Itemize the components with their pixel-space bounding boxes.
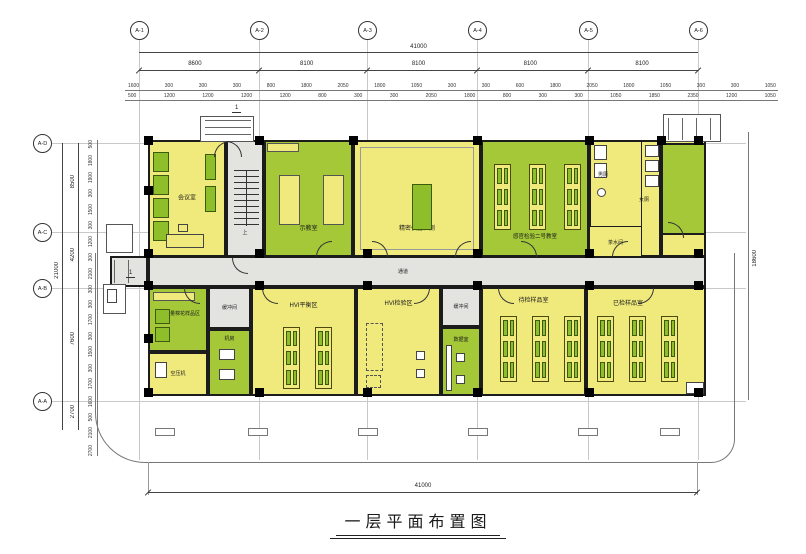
dim-value: 1700 bbox=[88, 314, 94, 325]
equipment-table bbox=[412, 184, 432, 230]
table bbox=[323, 175, 344, 225]
room-buffer-east: 缓冲间 bbox=[441, 287, 481, 327]
section-marker: 1 bbox=[126, 270, 135, 278]
plaza-step bbox=[660, 428, 680, 436]
dim-value: 300 bbox=[88, 300, 94, 308]
axis-label: A-4 bbox=[473, 28, 482, 34]
column bbox=[144, 186, 153, 195]
room-hvi-balance: HVI平衡区 bbox=[251, 287, 356, 396]
dim-value: 300 bbox=[88, 221, 94, 229]
room-classroom: 感官检验二号教室 bbox=[481, 140, 589, 257]
desk bbox=[456, 353, 465, 362]
dim-value: 1200 bbox=[726, 93, 737, 99]
axis-bubble-a3: A-3 bbox=[358, 21, 377, 40]
axis-label: A-1 bbox=[135, 28, 144, 34]
axis-bubble-a4: A-4 bbox=[468, 21, 487, 40]
column bbox=[473, 249, 482, 258]
dim-value: 1500 bbox=[88, 204, 94, 215]
dim-value: 8500 bbox=[70, 175, 76, 188]
dim-line bbox=[78, 143, 79, 430]
dim-value: 300 bbox=[233, 83, 241, 89]
axis-bubble-aa: A-A bbox=[33, 392, 52, 411]
drawing-title-block: 一层平面布置图 bbox=[283, 508, 553, 536]
cabinet bbox=[155, 327, 170, 342]
dim-value: 500 bbox=[88, 140, 94, 148]
dim-value: 300 bbox=[574, 93, 582, 99]
north-entrance-porch bbox=[200, 116, 254, 142]
room-label: 感官检验二号教室 bbox=[483, 234, 587, 241]
dim-value: 1200 bbox=[164, 93, 175, 99]
dim-bottom-total: 41000 bbox=[148, 483, 698, 489]
west-stoop bbox=[106, 224, 133, 253]
dim-value: 2050 bbox=[337, 83, 348, 89]
dim-value: 2700 bbox=[70, 405, 76, 418]
hvi-equipment-outline bbox=[366, 323, 383, 371]
dim-line bbox=[748, 132, 749, 400]
dim-value: 7600 bbox=[70, 332, 76, 345]
dim-value: 1050 bbox=[660, 83, 671, 89]
dim-value: 300 bbox=[354, 93, 362, 99]
room-label: 数据室 bbox=[443, 337, 479, 343]
room-compressor: 空压机 bbox=[148, 352, 208, 396]
sink bbox=[597, 188, 606, 197]
table bbox=[178, 224, 188, 232]
dim-right-total: 18600 bbox=[752, 250, 758, 267]
equipment bbox=[219, 369, 235, 380]
desk-block bbox=[500, 316, 517, 382]
room-label: HVI检验区 bbox=[358, 301, 439, 309]
column bbox=[585, 249, 594, 258]
fire-hydrant-box bbox=[267, 143, 299, 152]
dim-top-bays: 8600 8100 8100 8100 8100 bbox=[139, 61, 698, 67]
column bbox=[363, 249, 372, 258]
room-label: 男厕 bbox=[583, 172, 623, 178]
column bbox=[144, 281, 153, 290]
table bbox=[279, 175, 300, 225]
desk bbox=[456, 375, 465, 384]
axis-bubble-a6: A-6 bbox=[689, 21, 708, 40]
dim-value: 1800 bbox=[301, 83, 312, 89]
column bbox=[255, 249, 264, 258]
room-label: 缓冲间 bbox=[210, 305, 249, 311]
dim-value: 1050 bbox=[411, 83, 422, 89]
cabinet bbox=[153, 198, 169, 218]
dim-value: 2100 bbox=[88, 427, 94, 438]
axis-label: A-B bbox=[38, 286, 47, 292]
dim-value: 1600 bbox=[88, 396, 94, 407]
room-label: 示教室 bbox=[266, 226, 351, 234]
dim-value: 1050 bbox=[765, 83, 776, 89]
dim-value: 1800 bbox=[550, 83, 561, 89]
dim-value: 300 bbox=[731, 83, 739, 89]
column bbox=[694, 249, 703, 258]
dim-value: 4200 bbox=[70, 248, 76, 261]
corridor-label: 通道 bbox=[388, 269, 418, 275]
dim-line bbox=[125, 100, 778, 101]
toilet-stall bbox=[645, 160, 659, 172]
plaza-step bbox=[468, 428, 488, 436]
desk-block bbox=[532, 316, 549, 382]
dim-value: 300 bbox=[199, 83, 207, 89]
desk-block bbox=[629, 316, 646, 382]
partition-wall bbox=[641, 142, 642, 227]
dim-value: 500 bbox=[128, 93, 136, 99]
axis-label: A-2 bbox=[255, 28, 264, 34]
column bbox=[473, 388, 482, 397]
column bbox=[144, 136, 153, 145]
room-label: 已检样品室 bbox=[570, 301, 686, 309]
dim-value: 1200 bbox=[241, 93, 252, 99]
desk-block bbox=[597, 316, 614, 382]
dim-value: 300 bbox=[88, 253, 94, 261]
dim-top-sub-row2: 5001200120012001200800300300205018008003… bbox=[128, 93, 776, 99]
dim-value: 1800 bbox=[88, 155, 94, 166]
desk-block bbox=[529, 164, 546, 230]
dim-left-total: 21000 bbox=[54, 262, 60, 279]
floor-plan-canvas: A-1 A-2 A-3 A-4 A-5 A-6 41000 8600 8100 … bbox=[0, 0, 806, 554]
equipment bbox=[416, 351, 425, 360]
dim-line bbox=[125, 90, 778, 91]
desk-block bbox=[494, 164, 511, 230]
dim-value: 1800 bbox=[374, 83, 385, 89]
desk-block bbox=[661, 316, 678, 382]
plaza-step bbox=[578, 428, 598, 436]
axis-bubble-ac: A-C bbox=[33, 223, 52, 242]
column bbox=[363, 281, 372, 290]
room-precision: 精密仪器检测 bbox=[353, 140, 481, 257]
cabinet bbox=[205, 154, 216, 180]
room-label: 待检样品室 bbox=[483, 298, 584, 306]
dim-value: 8100 bbox=[474, 61, 586, 67]
dim-value: 1050 bbox=[765, 93, 776, 99]
dim-value: 300 bbox=[88, 189, 94, 197]
desk-block bbox=[283, 327, 300, 389]
cabinet bbox=[153, 175, 169, 195]
west-stoop bbox=[103, 284, 126, 314]
axis-label: A-D bbox=[38, 141, 47, 147]
room-meeting: 会议室 bbox=[148, 140, 226, 257]
dim-value: 300 bbox=[390, 93, 398, 99]
room-buffer-west: 缓冲间 bbox=[208, 287, 251, 329]
toilet-stall bbox=[594, 145, 607, 160]
stairwell: 上 bbox=[226, 140, 264, 257]
column bbox=[255, 281, 264, 290]
counter bbox=[446, 345, 452, 391]
axis-label: A-3 bbox=[363, 28, 372, 34]
dim-left-sub: 5001800190030015003001200300210030030017… bbox=[86, 140, 96, 456]
dim-top-sub-row1: 1600300300300800180020501800105030030060… bbox=[128, 83, 776, 89]
room-label: 女厕 bbox=[629, 197, 659, 203]
column bbox=[585, 388, 594, 397]
axis-label: A-C bbox=[38, 230, 47, 236]
dim-value: 300 bbox=[165, 83, 173, 89]
axis-bubble-ad: A-D bbox=[33, 134, 52, 153]
dim-value: 8100 bbox=[363, 61, 475, 67]
desk-block bbox=[315, 327, 332, 389]
dim-value: 800 bbox=[503, 93, 511, 99]
dim-value: 800 bbox=[318, 93, 326, 99]
room-label: 茶水间 bbox=[590, 239, 641, 245]
dim-value: 300 bbox=[88, 285, 94, 293]
stair-up-label: 上 bbox=[228, 230, 262, 236]
column bbox=[144, 249, 153, 258]
dim-line bbox=[139, 52, 698, 53]
cabinet bbox=[153, 152, 169, 172]
dim-value: 2350 bbox=[687, 93, 698, 99]
hvi-equipment-outline bbox=[366, 375, 381, 388]
desk-block bbox=[564, 164, 581, 230]
plaza-step bbox=[155, 428, 175, 436]
toilet-block: 男厕 女厕 茶水间 bbox=[589, 140, 661, 257]
northeast-entrance-porch bbox=[663, 114, 721, 142]
dim-value: 1800 bbox=[464, 93, 475, 99]
dim-line bbox=[62, 143, 63, 430]
dim-value: 1700 bbox=[88, 378, 94, 389]
dim-line bbox=[97, 140, 98, 456]
dim-value: 8100 bbox=[586, 61, 698, 67]
room-checked-samples: 已检样品室 bbox=[586, 287, 706, 396]
column bbox=[144, 388, 153, 397]
desk-block bbox=[564, 316, 581, 382]
column bbox=[657, 136, 666, 145]
dim-value: 1800 bbox=[623, 83, 634, 89]
dim-value: 1200 bbox=[202, 93, 213, 99]
column bbox=[473, 281, 482, 290]
equipment bbox=[416, 369, 425, 378]
dim-value: 800 bbox=[267, 83, 275, 89]
column bbox=[585, 281, 594, 290]
dim-value: 300 bbox=[482, 83, 490, 89]
dim-value: 300 bbox=[697, 83, 705, 89]
dim-value: 1050 bbox=[610, 93, 621, 99]
dim-value: 2100 bbox=[88, 268, 94, 279]
dim-value: 600 bbox=[516, 83, 524, 89]
stair-rail bbox=[246, 170, 247, 226]
equipment bbox=[219, 349, 235, 360]
column bbox=[585, 136, 594, 145]
axis-label: A-5 bbox=[584, 28, 593, 34]
dim-line bbox=[139, 70, 698, 71]
drawing-title: 一层平面布置图 bbox=[336, 508, 499, 536]
section-marker: 1 bbox=[232, 105, 241, 113]
room-machine: 机房 bbox=[208, 329, 251, 396]
dim-value: 1900 bbox=[88, 172, 94, 183]
plaza-step bbox=[248, 428, 268, 436]
dim-value: 1200 bbox=[280, 93, 291, 99]
dim-value: 1600 bbox=[128, 83, 139, 89]
dim-value: 8100 bbox=[251, 61, 363, 67]
plaza-step bbox=[358, 428, 378, 436]
room-label: 机房 bbox=[210, 336, 249, 342]
column bbox=[473, 136, 482, 145]
dim-line bbox=[148, 492, 698, 493]
table bbox=[166, 234, 204, 248]
column bbox=[363, 388, 372, 397]
cabinet bbox=[205, 186, 216, 212]
room-demo: 示教室 bbox=[264, 140, 353, 257]
dim-value: 8600 bbox=[139, 61, 251, 67]
column bbox=[349, 136, 358, 145]
dim-value: 500 bbox=[88, 413, 94, 421]
column bbox=[144, 334, 153, 343]
column bbox=[694, 136, 703, 145]
axis-bubble-ab: A-B bbox=[33, 279, 52, 298]
room-data: 数据室 bbox=[441, 327, 481, 396]
column bbox=[694, 388, 703, 397]
dim-value: 1200 bbox=[88, 236, 94, 247]
column bbox=[255, 136, 264, 145]
room-label: HVI平衡区 bbox=[253, 303, 354, 311]
dim-value: 300 bbox=[539, 93, 547, 99]
dim-top-total: 41000 bbox=[139, 44, 698, 50]
axis-label: A-A bbox=[38, 399, 47, 405]
dim-value: 2050 bbox=[426, 93, 437, 99]
dim-value: 2050 bbox=[586, 83, 597, 89]
cabinet bbox=[155, 309, 170, 324]
room-label: 缓冲间 bbox=[443, 304, 479, 310]
room-hvi-test: HVI检验区 bbox=[356, 287, 441, 396]
column bbox=[694, 281, 703, 290]
dim-value: 1500 bbox=[88, 346, 94, 357]
axis-label: A-6 bbox=[694, 28, 703, 34]
dim-value: 300 bbox=[88, 364, 94, 372]
dim-value: 300 bbox=[448, 83, 456, 89]
toilet-stall bbox=[645, 175, 659, 187]
axis-bubble-a1: A-1 bbox=[130, 21, 149, 40]
axis-bubble-a5: A-5 bbox=[579, 21, 598, 40]
column bbox=[255, 388, 264, 397]
toilet-stall bbox=[645, 145, 659, 157]
dim-value: 1850 bbox=[649, 93, 660, 99]
dim-value: 2700 bbox=[88, 445, 94, 456]
axis-bubble-a2: A-2 bbox=[250, 21, 269, 40]
dim-value: 300 bbox=[88, 332, 94, 340]
compressor-unit bbox=[155, 362, 167, 378]
